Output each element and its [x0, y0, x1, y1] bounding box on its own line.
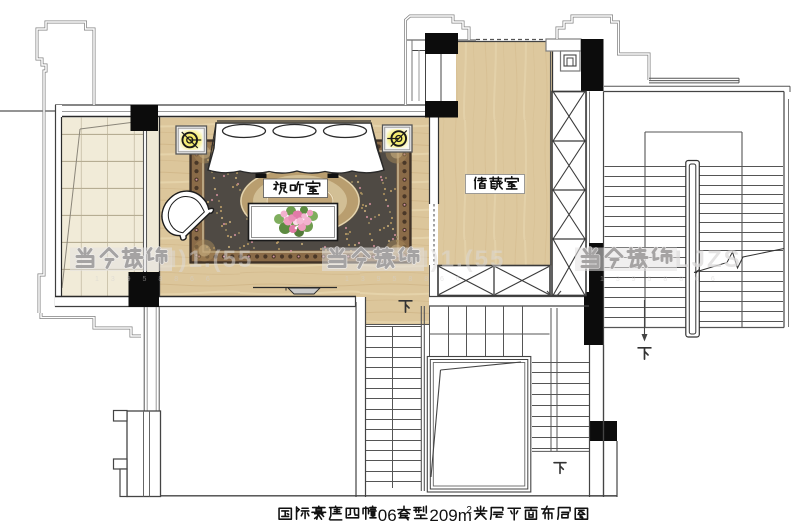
svg-text:1 3 9 5 8 8 6 6: 1 3 9 5 8 8 6 6	[600, 276, 720, 283]
svg-text:06: 06	[378, 506, 397, 525]
svg-text:LJZS: LJZS	[675, 246, 742, 273]
svg-text:I)1.(55: I)1.(55	[170, 246, 253, 273]
svg-text:I)1.(55: I)1.(55	[422, 246, 505, 273]
svg-text:1 3 9 5 8 8 6 6: 1 3 9 5 8 8 6 6	[95, 276, 215, 283]
svg-text:1 3 9 5 8 8 6 6: 1 3 9 5 8 8 6 6	[345, 276, 465, 283]
svg-text:2: 2	[466, 505, 472, 516]
